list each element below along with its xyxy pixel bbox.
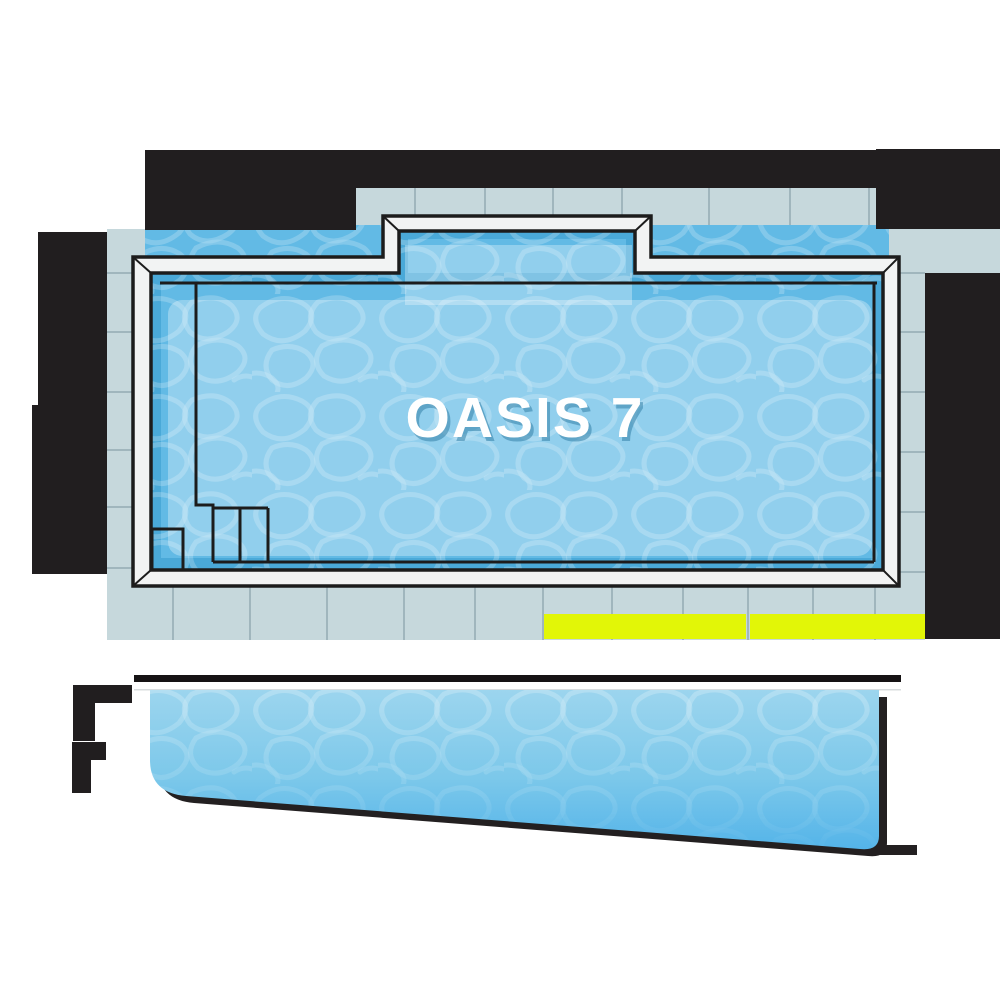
depth-mark-deep (72, 742, 106, 793)
side-coping-band (134, 682, 901, 690)
pool-diagram: OASIS 7 OASIS 7 (0, 0, 1000, 1000)
dimension-bar-right (925, 273, 1000, 639)
pool-diagram-canvas: OASIS 7 OASIS 7 (0, 0, 1000, 1000)
pool-top-view: OASIS 7 OASIS 7 (32, 149, 1000, 640)
pool-side-view (72, 675, 917, 856)
length-highlight (544, 614, 925, 639)
pool-name: OASIS 7 (406, 386, 645, 450)
dimension-bar-left (32, 232, 107, 574)
side-coping-line (134, 675, 901, 682)
depth-mark-shallow (73, 685, 132, 741)
